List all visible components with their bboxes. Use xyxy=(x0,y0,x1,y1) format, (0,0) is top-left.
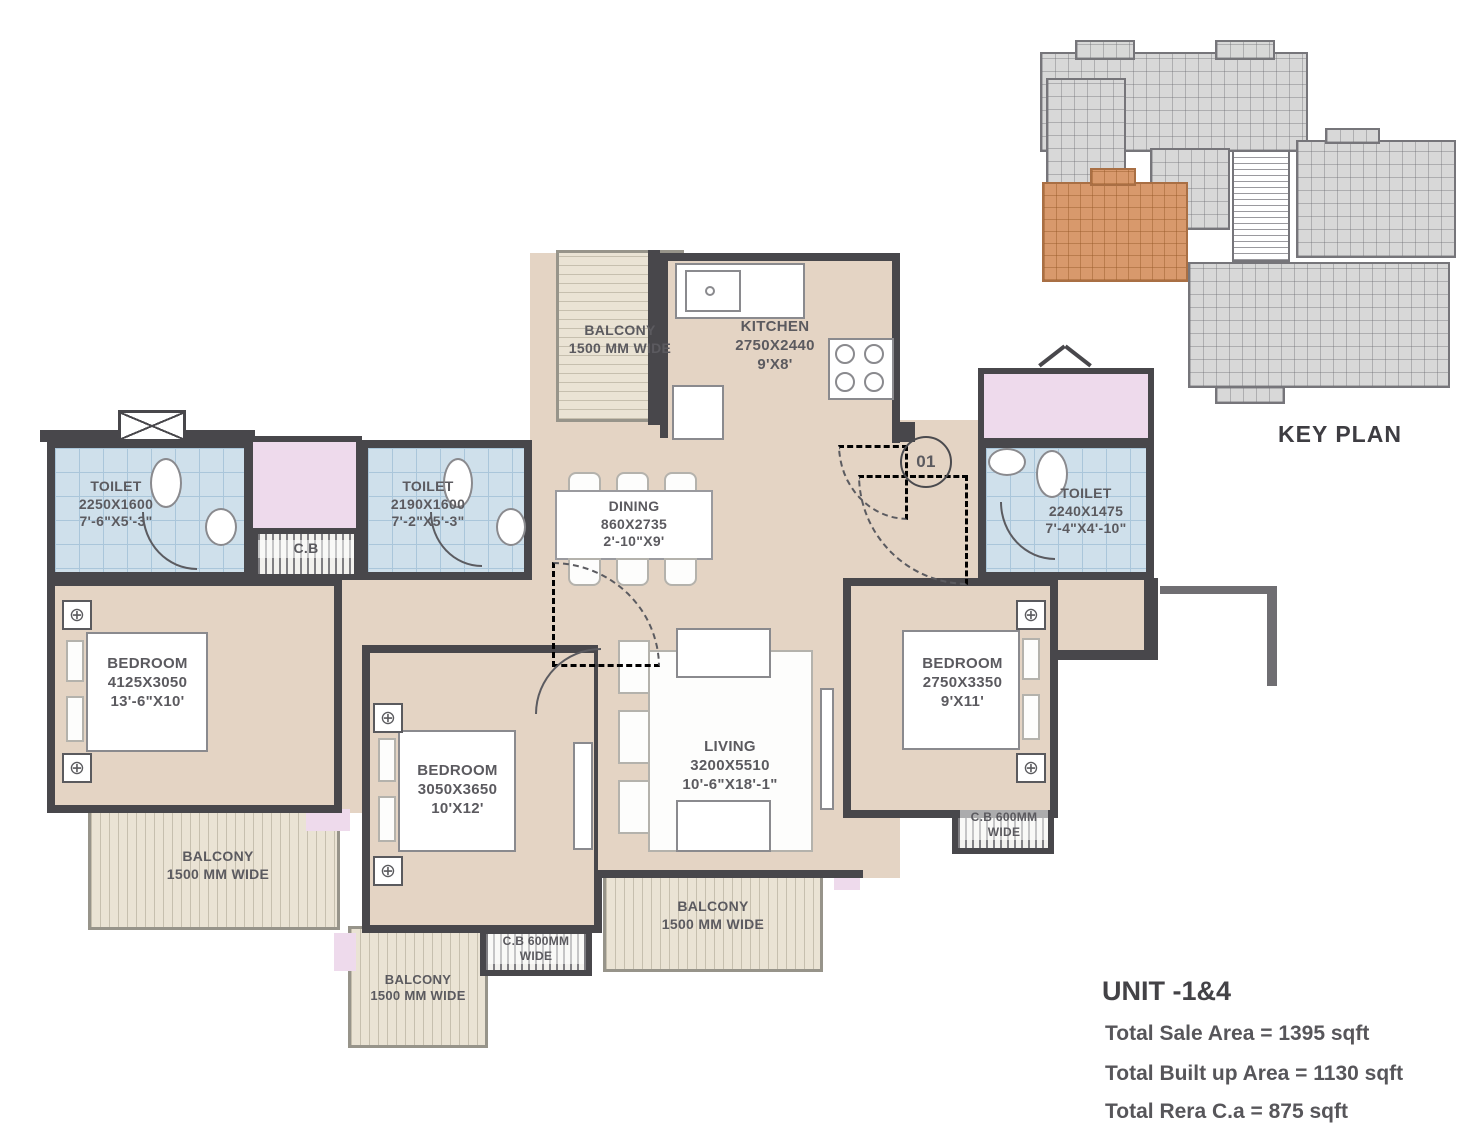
room-dim-ft: 9'X11' xyxy=(885,693,1040,712)
basin-mid-icon xyxy=(496,508,526,546)
room-dim-ft: 7'-4"X4'-10" xyxy=(1022,520,1150,538)
fan-glyph: ⊕ xyxy=(1023,757,1039,780)
balcony-name: BALCONY xyxy=(118,848,318,866)
room-name: DINING xyxy=(560,498,708,516)
balcony-width: 1500 MM WIDE xyxy=(566,340,674,358)
room-dim-mm: 2750X3350 xyxy=(885,674,1040,693)
fan-glyph: ⊕ xyxy=(380,707,396,730)
stove-burner-4 xyxy=(864,372,884,392)
fan-icon: ⊕ xyxy=(1016,753,1046,783)
room-name: BEDROOM xyxy=(885,655,1040,674)
label-living: LIVING 3200X5510 10'-6"X18'-1" xyxy=(650,738,810,794)
unit-title: UNIT -1&4 xyxy=(1102,976,1231,1007)
key-plan-highlighted-unit-bump xyxy=(1090,168,1136,186)
unit-built-up-area: Total Built up Area = 1130 sqft xyxy=(1105,1062,1403,1086)
room-name: TOILET xyxy=(52,478,180,496)
unit-sale-area: Total Sale Area = 1395 sqft xyxy=(1105,1022,1369,1046)
fan-icon: ⊕ xyxy=(62,600,92,630)
kitchen-fridge xyxy=(672,385,724,440)
balcony-name: BALCONY xyxy=(628,898,798,916)
room-name: KITCHEN xyxy=(700,318,850,337)
key-plan-wing-right xyxy=(1296,140,1456,258)
balcony-name: BALCONY xyxy=(352,972,484,988)
label-dining: DINING 860X2735 2'-10"X9' xyxy=(560,498,708,551)
wall-corridor-bottom xyxy=(1052,650,1158,660)
label-balcony-left: BALCONY 1500 MM WIDE xyxy=(118,848,318,883)
balcony-name: BALCONY xyxy=(566,322,674,340)
label-balcony-top: BALCONY 1500 MM WIDE xyxy=(566,322,674,357)
key-plan-wing-bottom-bump xyxy=(1215,386,1285,404)
duct-name: C.B 600MM WIDE xyxy=(488,934,584,964)
room-dim-ft: 13'-6"X10' xyxy=(70,693,225,712)
floor-corridor-right xyxy=(1050,578,1158,656)
fan-glyph: ⊕ xyxy=(69,604,85,627)
shaft-left xyxy=(247,436,362,534)
kitchen-sink-drain xyxy=(705,286,715,296)
balcony-width: 1500 MM WIDE xyxy=(628,916,798,934)
label-toilet-left: TOILET 2250X1600 7'-6"X5'-3" xyxy=(52,478,180,531)
room-name: BEDROOM xyxy=(70,655,225,674)
room-name: TOILET xyxy=(366,478,490,496)
sofa-bottom xyxy=(676,800,771,852)
room-dim-ft: 10'-6"X18'-1" xyxy=(650,776,810,795)
label-kitchen: KITCHEN 2750X2440 9'X8' xyxy=(700,318,850,374)
fan-glyph: ⊕ xyxy=(1023,604,1039,627)
key-plan-wing-right-bump xyxy=(1325,128,1380,144)
fan-icon: ⊕ xyxy=(373,856,403,886)
basin-right-icon xyxy=(988,448,1026,476)
key-plan xyxy=(1025,30,1465,460)
label-toilet-mid: TOILET 2190X1600 7'-2"X5'-3" xyxy=(366,478,490,531)
room-name: TOILET xyxy=(1022,485,1150,503)
key-plan-wing-top-bump-2 xyxy=(1215,40,1275,60)
room-name: LIVING xyxy=(650,738,810,757)
basin-left-icon xyxy=(205,508,237,546)
room-dim-mm: 2190X1600 xyxy=(366,496,490,514)
room-dim-mm: 3200X5510 xyxy=(650,757,810,776)
balcony-width: 1500 MM WIDE xyxy=(118,866,318,884)
room-dim-mm: 860X2735 xyxy=(560,516,708,534)
sofa-top xyxy=(676,628,771,678)
room-dim-mm: 4125X3050 xyxy=(70,674,225,693)
label-cb: C.B xyxy=(258,540,354,558)
fan-glyph: ⊕ xyxy=(69,757,85,780)
room-name: BEDROOM xyxy=(380,762,535,781)
key-plan-stair-core xyxy=(1232,150,1290,262)
stove-burner-2 xyxy=(864,344,884,364)
unit-rera-area: Total Rera C.a = 875 sqft xyxy=(1105,1100,1348,1124)
key-plan-wing-bottom xyxy=(1188,262,1450,388)
room-dim-ft: 2'-10"X9' xyxy=(560,533,708,551)
key-plan-title: KEY PLAN xyxy=(1270,420,1410,449)
label-balcony-bottom: BALCONY 1500 MM WIDE xyxy=(352,972,484,1005)
ledge-side xyxy=(1267,586,1277,686)
entry-number: 01 xyxy=(916,451,936,472)
label-bedroom-right: BEDROOM 2750X3350 9'X11' xyxy=(885,655,1040,711)
label-bedroom-mid: BEDROOM 3050X3650 10'X12' xyxy=(380,762,535,818)
armchair-2 xyxy=(618,710,650,764)
fan-glyph: ⊕ xyxy=(380,860,396,883)
room-dim-mm: 2250X1600 xyxy=(52,496,180,514)
key-plan-wing-top-bump-1 xyxy=(1075,40,1135,60)
fan-icon: ⊕ xyxy=(373,703,403,733)
wall-right-edge xyxy=(1144,578,1158,658)
floor-plan-sheet: ⊕ ⊕ ⊕ ⊕ ⊕ ⊕ 01 TOILET 2250X1600 7'-6"X5'… xyxy=(0,0,1483,1137)
room-dim-ft: 10'X12' xyxy=(380,800,535,819)
balcony-width: 1500 MM WIDE xyxy=(352,988,484,1004)
duct-name: C.B 600MM WIDE xyxy=(960,810,1048,840)
dining-chair-6 xyxy=(664,558,697,586)
fan-icon: ⊕ xyxy=(62,753,92,783)
room-dim-ft: 7'-2"X5'-3" xyxy=(366,513,490,531)
wardrobe-mid-bedroom xyxy=(573,742,593,850)
label-toilet-right: TOILET 2240X1475 7'-4"X4'-10" xyxy=(1022,485,1150,538)
stove-burner-3 xyxy=(835,372,855,392)
tv-unit xyxy=(820,688,834,810)
duct-name: C.B xyxy=(258,540,354,558)
label-cb600-bottom: C.B 600MM WIDE xyxy=(488,934,584,964)
room-dim-ft: 7'-6"X5'-3" xyxy=(52,513,180,531)
label-bedroom-left: BEDROOM 4125X3050 13'-6"X10' xyxy=(70,655,225,711)
wardrobe-hatch-icon xyxy=(118,410,186,442)
room-dim-mm: 2750X2440 xyxy=(700,337,850,356)
fan-icon: ⊕ xyxy=(1016,600,1046,630)
room-dim-mm: 2240X1475 xyxy=(1022,503,1150,521)
label-cb600-right: C.B 600MM WIDE xyxy=(960,810,1048,840)
entry-number-badge: 01 xyxy=(900,436,952,488)
room-dim-mm: 3050X3650 xyxy=(380,781,535,800)
dining-chair-5 xyxy=(616,558,649,586)
label-balcony-mid: BALCONY 1500 MM WIDE xyxy=(628,898,798,933)
room-dim-ft: 9'X8' xyxy=(700,356,850,375)
armchair-3 xyxy=(618,780,650,834)
shaft-patch-2 xyxy=(334,933,356,971)
ledge-top xyxy=(1160,586,1275,594)
key-plan-highlighted-unit xyxy=(1042,182,1188,282)
